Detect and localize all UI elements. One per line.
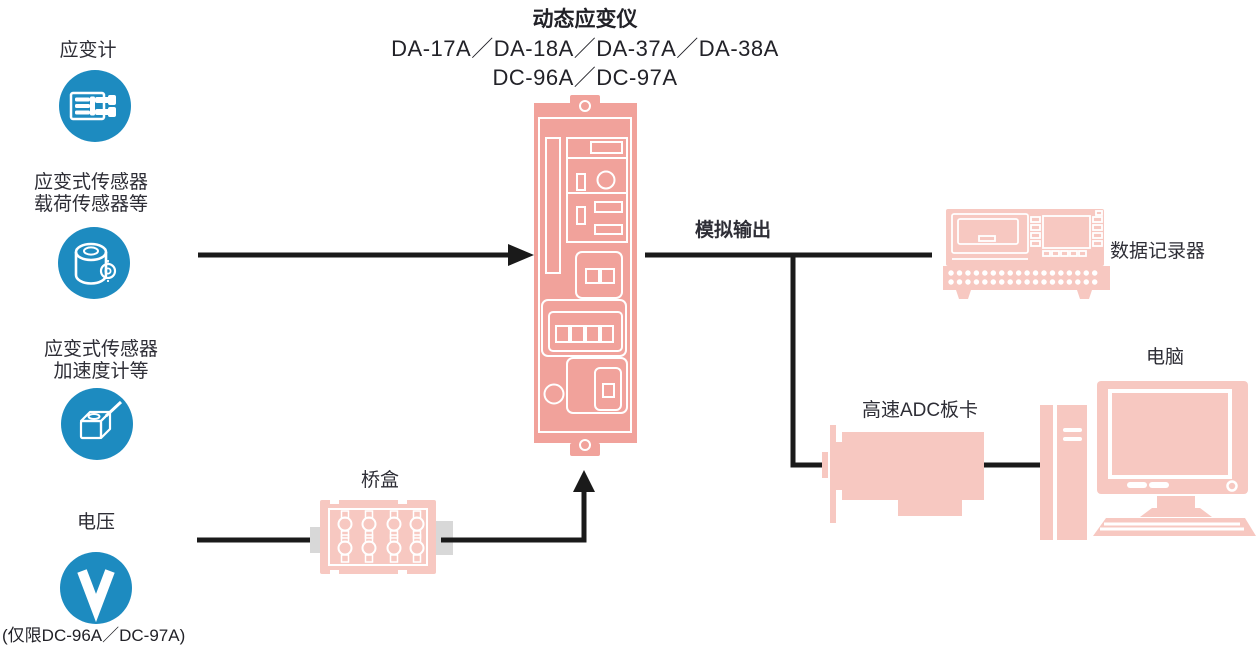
- strain-gauge-icon: [59, 70, 131, 142]
- amplifier-module: [534, 95, 638, 457]
- strain-gauge-label: 应变计: [38, 40, 138, 62]
- accelerometer-label-line1: 应变式传感器: [36, 339, 166, 361]
- amplifier-models-line1: DA-17A／DA-18A／DA-37A／DA-38A: [330, 34, 840, 63]
- arrowhead-up-icon: [573, 470, 595, 492]
- bridge-box: [308, 498, 460, 578]
- line-bridge-to-amplifier: [446, 490, 584, 540]
- load-sensor-label-line1: 应变式传感器: [26, 172, 156, 194]
- accelerometer-label-line2: 加速度计等: [36, 361, 166, 383]
- bridge-box-label: 桥盒: [330, 470, 430, 492]
- analog-output-label: 模拟输出: [695, 220, 771, 242]
- amplifier-title-block: 动态应变仪 DA-17A／DA-18A／DA-37A／DA-38A DC-96A…: [330, 6, 840, 92]
- arrowhead-right-icon: [508, 244, 534, 266]
- voltage-icon: [60, 552, 132, 624]
- load-cell-icon: [58, 227, 130, 299]
- load-sensor-label-line2: 载荷传感器等: [26, 194, 156, 216]
- diagram-canvas: 动态应变仪 DA-17A／DA-18A／DA-37A／DA-38A DC-96A…: [0, 0, 1258, 652]
- amplifier-title: 动态应变仪: [330, 6, 840, 34]
- accelerometer-icon: [61, 388, 133, 460]
- load-sensor-label: 应变式传感器 载荷传感器等: [26, 172, 156, 216]
- adc-board-label: 高速ADC板卡: [845, 400, 995, 422]
- amplifier-models-line2: DC-96A／DC-97A: [330, 63, 840, 92]
- data-recorder: [943, 206, 1110, 300]
- adc-board: [818, 420, 988, 525]
- voltage-label: 电压: [46, 512, 146, 534]
- data-recorder-label: 数据记录器: [1110, 241, 1205, 263]
- voltage-note: (仅限DC-96A／DC-97A): [2, 621, 185, 646]
- accelerometer-label: 应变式传感器 加速度计等: [36, 339, 166, 383]
- computer-label: 电脑: [1146, 347, 1184, 369]
- desktop-computer: [1038, 378, 1258, 540]
